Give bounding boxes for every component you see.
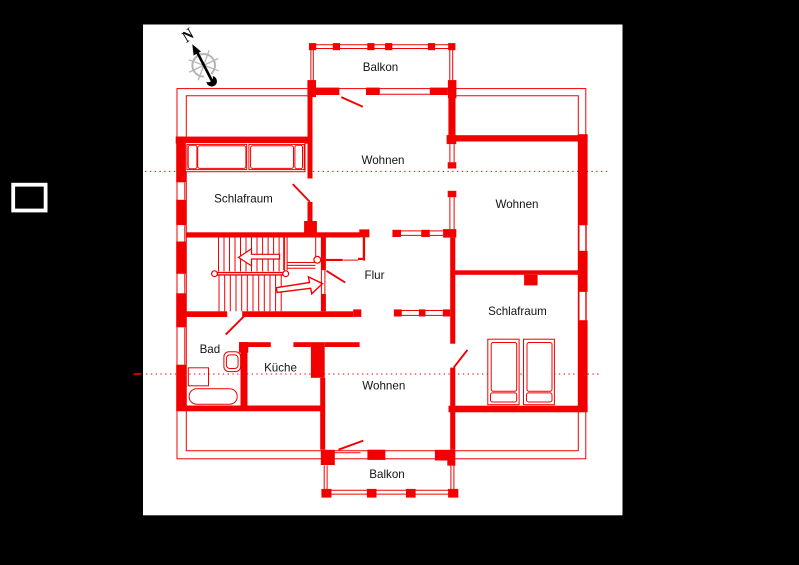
svg-text:Küche: Küche bbox=[264, 361, 297, 374]
svg-text:Schlafraum: Schlafraum bbox=[214, 193, 273, 206]
svg-text:Wohnen: Wohnen bbox=[362, 154, 405, 167]
svg-text:Bad: Bad bbox=[200, 343, 221, 356]
svg-text:Wohnen: Wohnen bbox=[362, 379, 405, 392]
svg-text:Wohnen: Wohnen bbox=[496, 198, 539, 211]
svg-text:Schlafraum: Schlafraum bbox=[488, 305, 547, 318]
svg-text:Balkon: Balkon bbox=[369, 468, 404, 481]
svg-text:Flur: Flur bbox=[365, 269, 385, 282]
svg-text:Balkon: Balkon bbox=[363, 61, 398, 74]
